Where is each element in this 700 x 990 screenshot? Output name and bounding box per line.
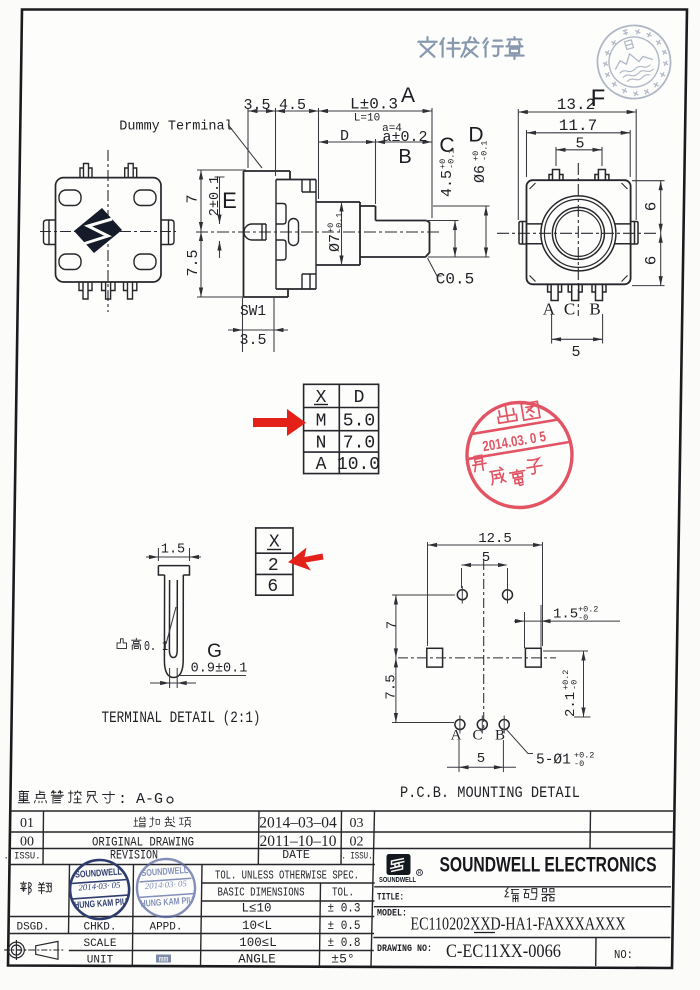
svg-text:N: N	[316, 434, 327, 454]
svg-text:B: B	[398, 146, 411, 168]
svg-text:-0.1: -0.1	[447, 149, 457, 169]
svg-text:-0: -0	[574, 759, 584, 769]
svg-text:DATE: DATE	[282, 849, 310, 862]
svg-text:2: 2	[268, 556, 279, 576]
svg-text:BASIC DIMENSIONS: BASIC DIMENSIONS	[218, 886, 305, 900]
svg-text:SOUNDWELL: SOUNDWELL	[379, 877, 417, 884]
svg-text:A: A	[401, 84, 415, 107]
svg-text:MODEL:: MODEL:	[377, 909, 407, 920]
svg-text:Ø6: Ø6	[472, 165, 489, 183]
svg-text:SW1: SW1	[240, 304, 266, 320]
svg-text:TERMINAL DETAIL (2:1): TERMINAL DETAIL (2:1)	[102, 709, 261, 727]
svg-text:5: 5	[482, 550, 490, 566]
svg-text:Ø7: Ø7	[327, 234, 344, 252]
svg-text:D: D	[340, 128, 349, 145]
svg-text:1.5: 1.5	[553, 607, 578, 623]
svg-text:-0.1: -0.1	[335, 213, 345, 233]
svg-text:DSGD.: DSGD.	[16, 922, 49, 934]
svg-text:10<L: 10<L	[242, 919, 272, 933]
svg-text:100≤L: 100≤L	[239, 936, 277, 950]
svg-text:B: B	[589, 300, 600, 319]
svg-text:TOL. UNLESS OTHERWISE SPEC.: TOL. UNLESS OTHERWISE SPEC.	[215, 869, 359, 883]
svg-text:ANGLE: ANGLE	[238, 953, 276, 967]
svg-text:-0: -0	[578, 613, 588, 623]
svg-text:APPD.: APPD.	[149, 922, 182, 934]
svg-text:7: 7	[385, 621, 401, 629]
svg-text:7: 7	[185, 194, 202, 203]
svg-text:. ISSU.: . ISSU.	[342, 851, 373, 863]
svg-text:5: 5	[571, 344, 580, 361]
svg-text:2.1: 2.1	[563, 692, 579, 717]
svg-text:L=10: L=10	[354, 113, 380, 125]
svg-text:UNIT: UNIT	[87, 955, 114, 967]
svg-text:± 0.5: ± 0.5	[328, 918, 361, 933]
svg-text:5.0: 5.0	[343, 412, 375, 432]
svg-text:2±0.1: 2±0.1	[208, 176, 223, 217]
svg-text:-0.1: -0.1	[480, 141, 490, 161]
svg-text:3.5: 3.5	[239, 332, 266, 349]
svg-text:-0: -0	[570, 680, 580, 690]
svg-text:02: 02	[350, 835, 364, 850]
svg-text:3.5: 3.5	[243, 97, 270, 114]
svg-text:C0.5: C0.5	[436, 271, 474, 289]
svg-text:mm: mm	[159, 955, 169, 964]
svg-text:Dummy Terminal: Dummy Terminal	[119, 120, 232, 135]
svg-text:2011–10–10: 2011–10–10	[260, 833, 337, 850]
svg-text:SOUNDWELL ELECTRONICS: SOUNDWELL ELECTRONICS	[440, 853, 657, 877]
svg-text:NO:: NO:	[614, 948, 633, 962]
svg-text:D: D	[354, 388, 365, 408]
svg-text:P.C.B. MOUNTING DETAIL: P.C.B. MOUNTING DETAIL	[400, 784, 580, 802]
svg-text:E: E	[222, 188, 237, 213]
svg-text:TITLE:: TITLE:	[377, 893, 404, 904]
svg-text:F: F	[591, 85, 606, 112]
svg-text:1.5: 1.5	[161, 543, 185, 558]
svg-text:R: R	[418, 871, 422, 877]
svg-text:M: M	[316, 412, 327, 432]
svg-text:5-Ø1: 5-Ø1	[536, 753, 571, 769]
svg-text:03: 03	[350, 816, 364, 831]
svg-text:2014–03–04: 2014–03–04	[259, 815, 337, 832]
svg-text:5: 5	[477, 751, 485, 767]
svg-text:REVISION: REVISION	[110, 849, 158, 863]
svg-text:ORIGINAL DRAWING: ORIGINAL DRAWING	[92, 836, 194, 850]
svg-text:CHKD.: CHKD.	[83, 922, 116, 934]
svg-text:4.5: 4.5	[279, 97, 306, 114]
svg-text:12.5: 12.5	[478, 531, 512, 547]
svg-text:a±0.2: a±0.2	[382, 129, 427, 146]
svg-text:L≤10: L≤10	[241, 902, 271, 916]
svg-text:EC110202XXD-HA1-FAXXXAXXX: EC110202XXD-HA1-FAXXXAXXX	[411, 914, 626, 934]
svg-text:SCALE: SCALE	[83, 938, 116, 950]
svg-text:L±0.3: L±0.3	[350, 96, 398, 114]
svg-text:TOL.: TOL.	[332, 886, 354, 900]
svg-text:0.9±0.1: 0.9±0.1	[191, 662, 248, 677]
svg-text:C: C	[564, 300, 575, 319]
svg-text:: A-G: : A-G	[118, 791, 163, 808]
svg-text:01: 01	[20, 816, 34, 831]
svg-text:± 0.3: ± 0.3	[328, 901, 361, 916]
svg-text:5: 5	[575, 136, 584, 153]
svg-text:7.0: 7.0	[343, 434, 375, 454]
svg-text:00: 00	[20, 835, 34, 850]
svg-text:0. 1: 0. 1	[144, 640, 168, 655]
svg-text:7.5: 7.5	[384, 674, 400, 699]
svg-text:B: B	[495, 728, 505, 744]
svg-text:7.5: 7.5	[185, 249, 202, 276]
svg-text:C-EC11XX-0066: C-EC11XX-0066	[446, 941, 561, 962]
svg-text:4.5: 4.5	[439, 170, 456, 197]
svg-text:A: A	[543, 300, 556, 319]
svg-text:G: G	[207, 641, 222, 662]
svg-text:±5°: ±5°	[331, 952, 354, 967]
svg-text:C: C	[472, 728, 482, 744]
svg-text:. ISSU.: . ISSU.	[4, 851, 41, 863]
svg-text:A: A	[451, 728, 462, 744]
svg-text:6: 6	[643, 202, 661, 212]
svg-text:13.2: 13.2	[557, 96, 595, 114]
svg-text:11.7: 11.7	[559, 117, 597, 135]
svg-text:DRAWING NO:: DRAWING NO:	[377, 943, 432, 955]
svg-text:6: 6	[643, 256, 661, 266]
svg-text:A: A	[316, 455, 327, 475]
svg-text:6: 6	[267, 577, 278, 597]
svg-text:± 0.8: ± 0.8	[328, 935, 361, 950]
svg-text:10.0: 10.0	[337, 455, 380, 475]
